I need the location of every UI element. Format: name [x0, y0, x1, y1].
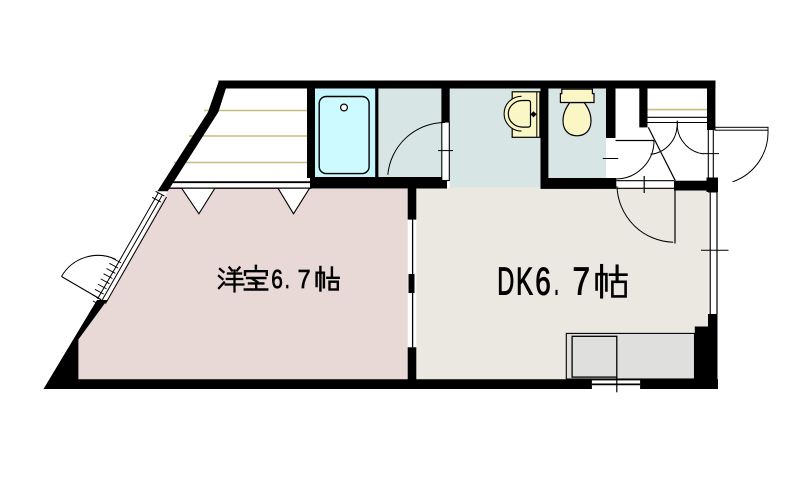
svg-text:.: .	[554, 261, 559, 304]
svg-text:.: .	[285, 264, 290, 294]
svg-text:7: 7	[573, 261, 591, 304]
svg-text:D: D	[497, 261, 514, 304]
svg-text:7: 7	[298, 264, 311, 294]
svg-text:K: K	[516, 261, 533, 304]
svg-text:6: 6	[535, 261, 551, 304]
svg-text:6: 6	[271, 264, 283, 294]
